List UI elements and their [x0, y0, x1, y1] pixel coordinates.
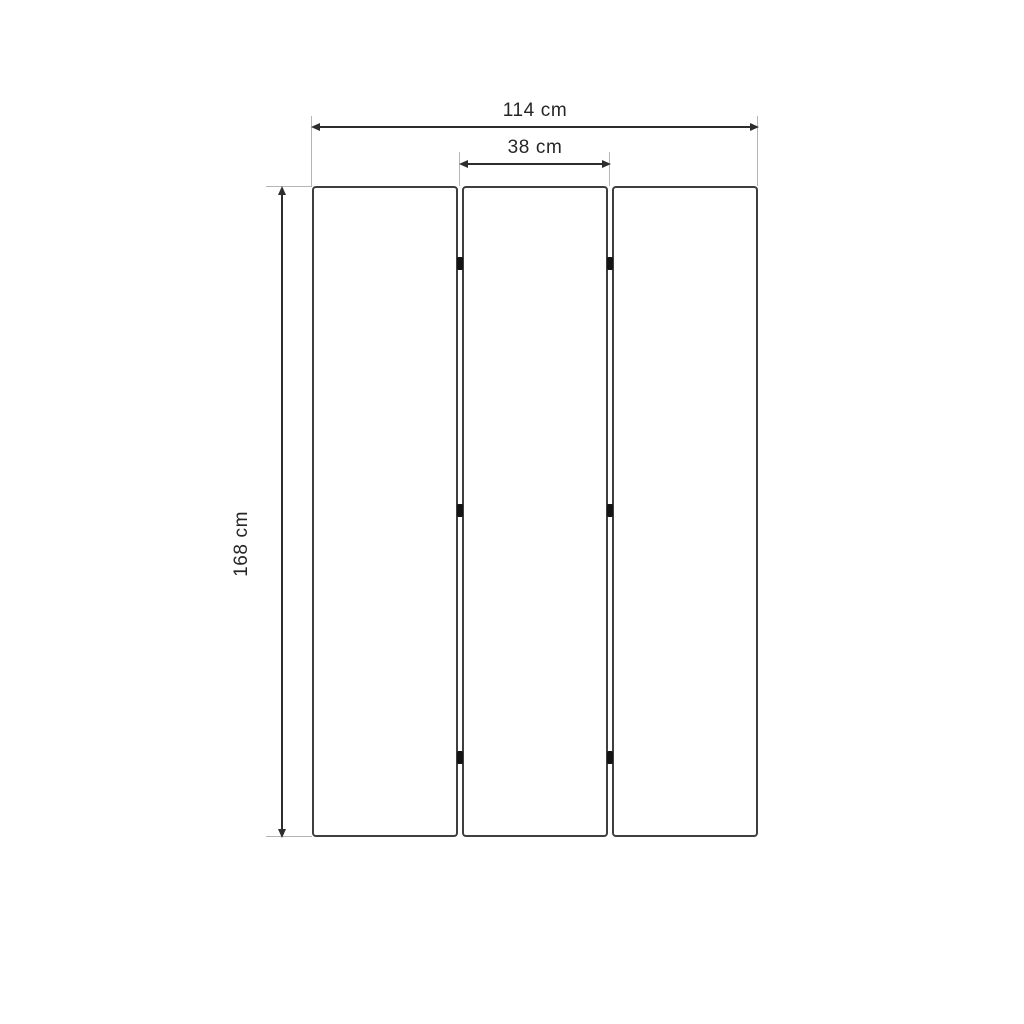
total-width-label: 114 cm: [435, 100, 635, 122]
dimension-diagram: 114 cm 38 cm 168 cm: [0, 0, 1024, 1024]
height-label: 168 cm: [231, 511, 255, 577]
total-width-dimension-line: [319, 126, 751, 128]
height-dimension-line: [281, 194, 283, 830]
panel-width-label: 38 cm: [435, 137, 635, 159]
hinge-icon: [457, 257, 463, 270]
hinge-icon: [607, 257, 613, 270]
hinge-icon: [607, 751, 613, 764]
arrowhead-right-icon: [602, 160, 611, 168]
panel-middle: [462, 186, 608, 837]
panel-width-dimension-line: [467, 163, 603, 165]
arrowhead-left-icon: [459, 160, 468, 168]
hinge-icon: [457, 751, 463, 764]
arrowhead-left-icon: [311, 123, 320, 131]
extension-line: [266, 186, 312, 187]
panel-left: [312, 186, 458, 837]
hinge-icon: [457, 504, 463, 517]
hinge-icon: [607, 504, 613, 517]
arrowhead-down-icon: [278, 829, 286, 838]
extension-line: [266, 836, 312, 837]
arrowhead-up-icon: [278, 186, 286, 195]
panel-right: [612, 186, 758, 837]
arrowhead-right-icon: [750, 123, 759, 131]
